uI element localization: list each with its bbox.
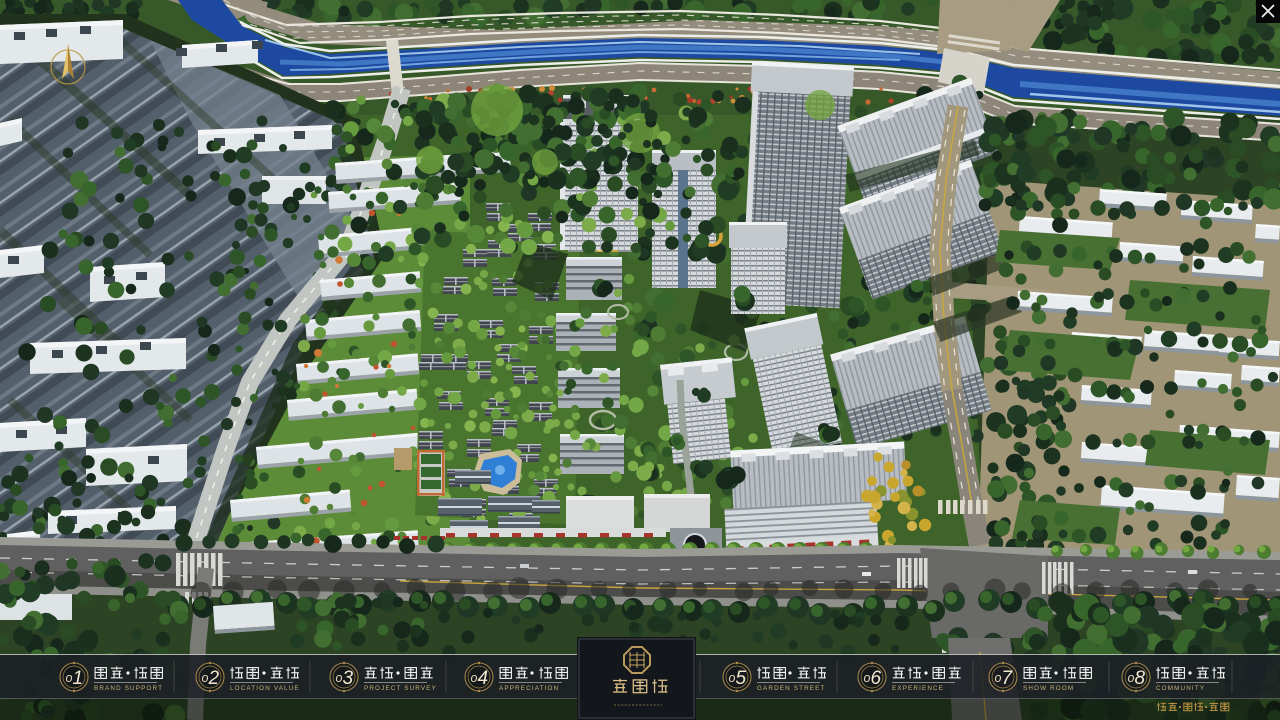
svg-text:APPRECIATION: APPRECIATION (499, 685, 559, 692)
svg-text:7: 7 (1002, 668, 1014, 689)
svg-text:GARDEN STREET: GARDEN STREET (757, 685, 825, 692)
svg-text:o: o (202, 671, 209, 685)
svg-text:o: o (1128, 671, 1135, 685)
svg-text:o: o (864, 671, 871, 685)
svg-text:EXPERIENCE: EXPERIENCE (892, 685, 944, 692)
svg-text:o: o (66, 671, 73, 685)
svg-text:BRAND SUPPORT: BRAND SUPPORT (94, 685, 163, 692)
svg-text:o: o (471, 671, 478, 685)
svg-text:2: 2 (208, 668, 220, 689)
svg-text:o: o (729, 671, 736, 685)
svg-text:5: 5 (736, 668, 747, 689)
svg-text:3: 3 (343, 668, 354, 689)
svg-text:8: 8 (1135, 668, 1146, 689)
svg-text:6: 6 (871, 668, 882, 689)
svg-text:4: 4 (478, 668, 489, 689)
svg-text:SHOW ROOM: SHOW ROOM (1023, 685, 1074, 692)
svg-text:PROJECT SURVEY: PROJECT SURVEY (364, 685, 437, 692)
svg-text:LOCATION VALUE: LOCATION VALUE (230, 685, 300, 692)
svg-text:o: o (336, 671, 343, 685)
svg-text:COMMUNITY: COMMUNITY (1156, 685, 1205, 692)
svg-text:1: 1 (73, 668, 84, 689)
svg-text:o: o (995, 671, 1002, 685)
